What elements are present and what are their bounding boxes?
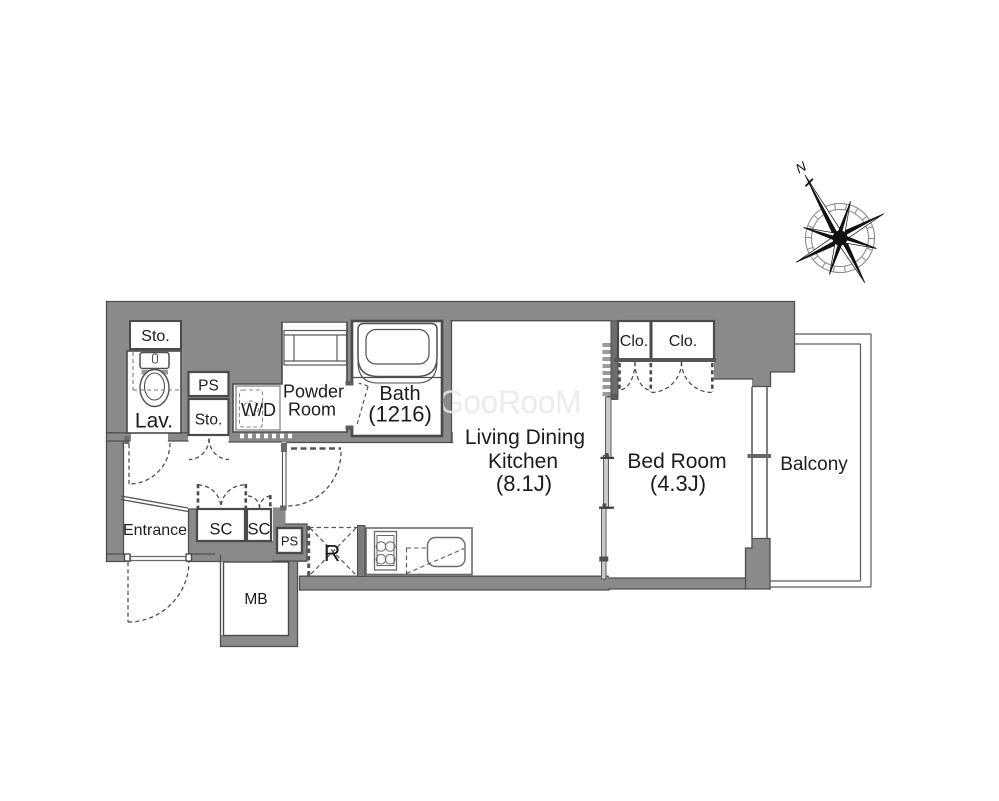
- svg-text:(8.1J): (8.1J): [496, 471, 552, 496]
- svg-text:Sto.: Sto.: [195, 412, 223, 429]
- svg-text:(4.3J): (4.3J): [650, 471, 706, 496]
- svg-text:W/D: W/D: [241, 400, 276, 420]
- svg-text:Living Dining: Living Dining: [465, 426, 585, 449]
- svg-text:PS: PS: [198, 378, 219, 395]
- svg-text:(1216): (1216): [368, 402, 432, 427]
- svg-text:MB: MB: [244, 591, 267, 608]
- svg-text:Clo.: Clo.: [620, 333, 648, 350]
- svg-text:Lav.: Lav.: [135, 410, 173, 433]
- svg-text:Balcony: Balcony: [780, 454, 848, 475]
- svg-text:Powder: Powder: [283, 382, 344, 402]
- svg-text:PS: PS: [281, 534, 299, 549]
- svg-text:SC: SC: [210, 521, 233, 539]
- svg-text:R: R: [324, 540, 341, 566]
- svg-text:Bed Room: Bed Room: [627, 450, 726, 473]
- svg-text:GooRooM: GooRooM: [439, 384, 581, 420]
- svg-text:Kitchen: Kitchen: [488, 450, 558, 473]
- svg-text:Clo.: Clo.: [669, 333, 697, 350]
- svg-text:Sto.: Sto.: [141, 328, 169, 345]
- svg-text:Entrance: Entrance: [123, 522, 187, 539]
- svg-text:Room: Room: [288, 400, 336, 420]
- svg-text:SC: SC: [248, 521, 271, 539]
